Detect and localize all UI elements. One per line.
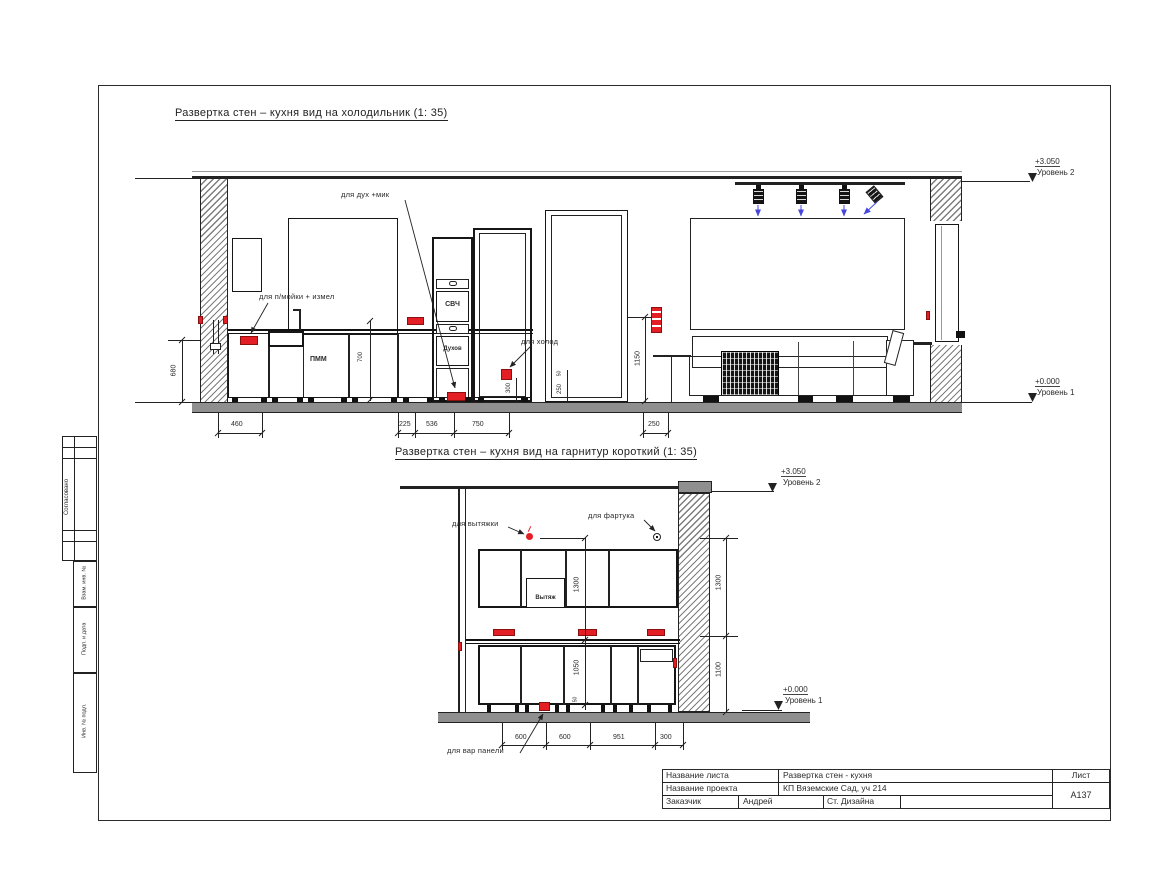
balcony-door (935, 224, 959, 342)
socket (198, 316, 203, 324)
dim-ext (218, 413, 219, 438)
cabinet-foot (525, 705, 529, 712)
door-inner-line (941, 226, 942, 340)
level1-name: Уровень 1 (785, 696, 823, 705)
dim-ext (540, 538, 585, 539)
socket (926, 311, 930, 320)
cabinet-divider (637, 646, 639, 705)
dim-text: 700 (358, 339, 364, 375)
dim-ext (700, 538, 738, 539)
socket-strip (578, 629, 597, 636)
dim-line (218, 433, 262, 434)
cabinet-divider (608, 550, 610, 607)
dim-ext (628, 317, 652, 318)
margin-rule (74, 436, 75, 561)
dishwasher-label: ПММ (310, 356, 327, 364)
margin-rule (62, 458, 97, 459)
cabinet-divider (565, 550, 567, 607)
stamp-project: КП Вяземские Сад, уч 214 (783, 784, 887, 794)
wall-fixture-box (210, 343, 221, 350)
sofa-foot (893, 396, 910, 402)
wall-panel (690, 218, 905, 330)
cabinet-divider (348, 334, 350, 397)
dim-text: 600 (559, 734, 571, 742)
sofa-foot (836, 396, 853, 402)
socket-strip (493, 629, 515, 636)
ceiling-line (400, 486, 712, 489)
sofa-foot (798, 396, 813, 402)
wall-right (678, 493, 710, 712)
dim-ext (454, 413, 455, 438)
hood-outlet-dot (526, 533, 533, 540)
dim-text: 1050 (574, 650, 581, 686)
cabinet-foot (391, 397, 397, 402)
cabinet-divider (563, 646, 565, 705)
dim-text: 225 (399, 421, 411, 429)
dim-line (567, 370, 568, 402)
titleblock-rule (778, 769, 779, 795)
dim-ext (509, 413, 510, 438)
cabinet-foot (478, 397, 484, 402)
callout-oven-mic: для дух +мик (341, 191, 389, 200)
ceiling-line (192, 176, 962, 179)
cabinet-foot (647, 705, 651, 712)
dim-text: 460 (231, 421, 243, 429)
drawer-handle (449, 281, 457, 286)
dim-text: 750 (472, 421, 484, 429)
dim-line (585, 538, 586, 710)
margin-rule (62, 530, 97, 531)
level2-name: Уровень 2 (783, 478, 821, 487)
drawer-box (640, 649, 673, 662)
dim-ext (415, 413, 416, 438)
socket (223, 316, 228, 324)
dim-text: 951 (613, 734, 625, 742)
floor-ext-left (135, 402, 192, 403)
drawer-handle (449, 326, 457, 331)
ceiling-ext-left (135, 178, 200, 179)
cabinet-foot (555, 705, 559, 712)
cabinet-foot (465, 397, 471, 402)
upper-cabinet-small (232, 238, 262, 292)
dim-text: 680 (171, 353, 178, 389)
dim-line (182, 340, 183, 402)
socket-oven-mic (447, 392, 466, 401)
socket (673, 658, 677, 668)
window (288, 218, 398, 335)
cabinet-foot (297, 397, 303, 402)
cabinet-foot (439, 397, 445, 402)
spotlight (753, 189, 764, 204)
dim-ext (700, 636, 738, 637)
cabinet-foot (521, 397, 528, 402)
level2-leader (712, 491, 774, 492)
cabinet-foot (487, 705, 491, 712)
dim-ext (168, 340, 200, 341)
stamp-sheet-name: Развертка стен - кухня (783, 771, 872, 781)
cabinet-foot (629, 705, 633, 712)
titleblock-rule (823, 795, 824, 809)
socket-sink (240, 336, 258, 345)
cabinet-foot (515, 705, 519, 712)
level2-leader (962, 181, 1030, 182)
titleblock-rule (738, 795, 739, 809)
stamp-studio: Ст. Дизайна (827, 797, 874, 807)
margin-rule (62, 541, 97, 542)
sink (268, 331, 304, 347)
side-table-top (653, 355, 691, 357)
door-handle (956, 331, 965, 338)
floor-slab (192, 402, 962, 413)
titleblock-rule (900, 795, 901, 809)
dim-text: 1300 (716, 565, 723, 601)
level2-value: +3.050 (1035, 157, 1060, 167)
sofa-cushion-line (853, 341, 854, 396)
hood-box (526, 578, 565, 608)
callout-sink: для п/мойки + измел (259, 293, 334, 302)
socket (458, 642, 462, 651)
spotlight (839, 189, 850, 204)
cabinet-foot (308, 397, 314, 402)
hood-label: Вытяж (526, 595, 565, 602)
dim-text: 300 (506, 370, 512, 406)
level1-value: +0.000 (1035, 377, 1060, 387)
callout-apron: для фартука (588, 512, 634, 521)
level1-value: +0.000 (783, 685, 808, 695)
radiator (721, 351, 779, 396)
dim-line (643, 433, 668, 434)
stamp-client: Андрей (743, 797, 773, 807)
dim-text: 1300 (574, 567, 581, 603)
sofa-foot (703, 396, 719, 402)
margin-label-inv: Инв. № подл. (82, 691, 88, 751)
countertop (466, 639, 680, 644)
callout-hob: для вар панели (447, 747, 504, 756)
cabinet-foot (403, 397, 409, 402)
callout-hood-socket: для вытяжки (452, 520, 498, 529)
drawing-sheet: Согласовано Взам. инв. № Подп. и дата Ин… (0, 0, 1155, 893)
socket-strip (647, 629, 665, 636)
apron-outlet-dot (656, 536, 658, 538)
wall-left (200, 178, 228, 403)
floor-slab (438, 712, 810, 723)
dim-line (502, 745, 683, 746)
dim-text: 50 (574, 682, 579, 718)
cabinet-divider (520, 550, 522, 607)
level2-name: Уровень 2 (1037, 168, 1075, 177)
cabinet-divider (397, 334, 399, 397)
cabinet-foot (427, 397, 433, 402)
stamp-sheet-number: А137 (1052, 790, 1110, 800)
margin-label-podp: Подп. и дата (82, 609, 88, 669)
view1-title: Развертка стен – кухня вид на холодильни… (175, 107, 448, 121)
view2-title: Развертка стен – кухня вид на гарнитур к… (395, 446, 697, 460)
margin-rule (62, 447, 97, 448)
dim-text: 50 (558, 356, 563, 392)
dim-text: 1100 (716, 652, 723, 688)
cabinet-foot (566, 705, 570, 712)
dim-ext (683, 723, 684, 750)
dim-text: 1150 (635, 341, 642, 377)
spotlight (796, 189, 807, 204)
dim-ext (668, 413, 669, 438)
oven-label: Духов (436, 346, 469, 353)
cabinet-foot (352, 397, 358, 402)
dim-line (370, 321, 371, 401)
callout-fridge: для холод (521, 338, 558, 347)
cabinet-foot (272, 397, 278, 402)
tv-socket-strip (651, 307, 662, 333)
stamp-sheet-label: Лист (1052, 771, 1110, 781)
stamp-project-label: Название проекта (666, 784, 737, 794)
cabinet-foot (341, 397, 347, 402)
level1-leader (742, 710, 782, 711)
stamp-client-label: Заказчик (666, 797, 701, 807)
socket-strip (407, 317, 424, 325)
cabinet-foot (232, 397, 238, 402)
level1-leader (962, 402, 1032, 403)
cabinet-foot (613, 705, 617, 712)
level1-name: Уровень 1 (1037, 388, 1075, 397)
stamp-sheet-name-label: Название листа (666, 771, 729, 781)
microwave-label: СВЧ (436, 301, 469, 309)
faucet (299, 309, 301, 330)
dim-text: 300 (660, 734, 672, 742)
faucet-spout (293, 309, 301, 311)
side-table-leg (671, 357, 672, 402)
socket-hob (539, 702, 550, 711)
ceiling-slab (678, 481, 712, 493)
dim-text: 536 (426, 421, 438, 429)
dim-line (645, 317, 646, 402)
dim-text: 250 (648, 421, 660, 429)
dim-ext (262, 413, 263, 438)
sofa-cushion-line (798, 342, 799, 396)
cabinet-divider (520, 646, 522, 705)
cabinet-foot (261, 397, 267, 402)
level2-value: +3.050 (781, 467, 806, 477)
dim-line (398, 433, 509, 434)
cabinet-foot (601, 705, 605, 712)
cabinet-divider (610, 646, 612, 705)
dim-text: 600 (515, 734, 527, 742)
margin-label-approved: Согласовано (64, 467, 70, 527)
cabinet-foot (668, 705, 672, 712)
wall-shelf (914, 342, 932, 345)
margin-label-vzam: Взам. инв. № (82, 553, 88, 613)
dim-ext (643, 413, 644, 438)
dim-line (516, 378, 517, 402)
dim-line (726, 538, 727, 712)
ceiling-line-2 (192, 171, 962, 172)
